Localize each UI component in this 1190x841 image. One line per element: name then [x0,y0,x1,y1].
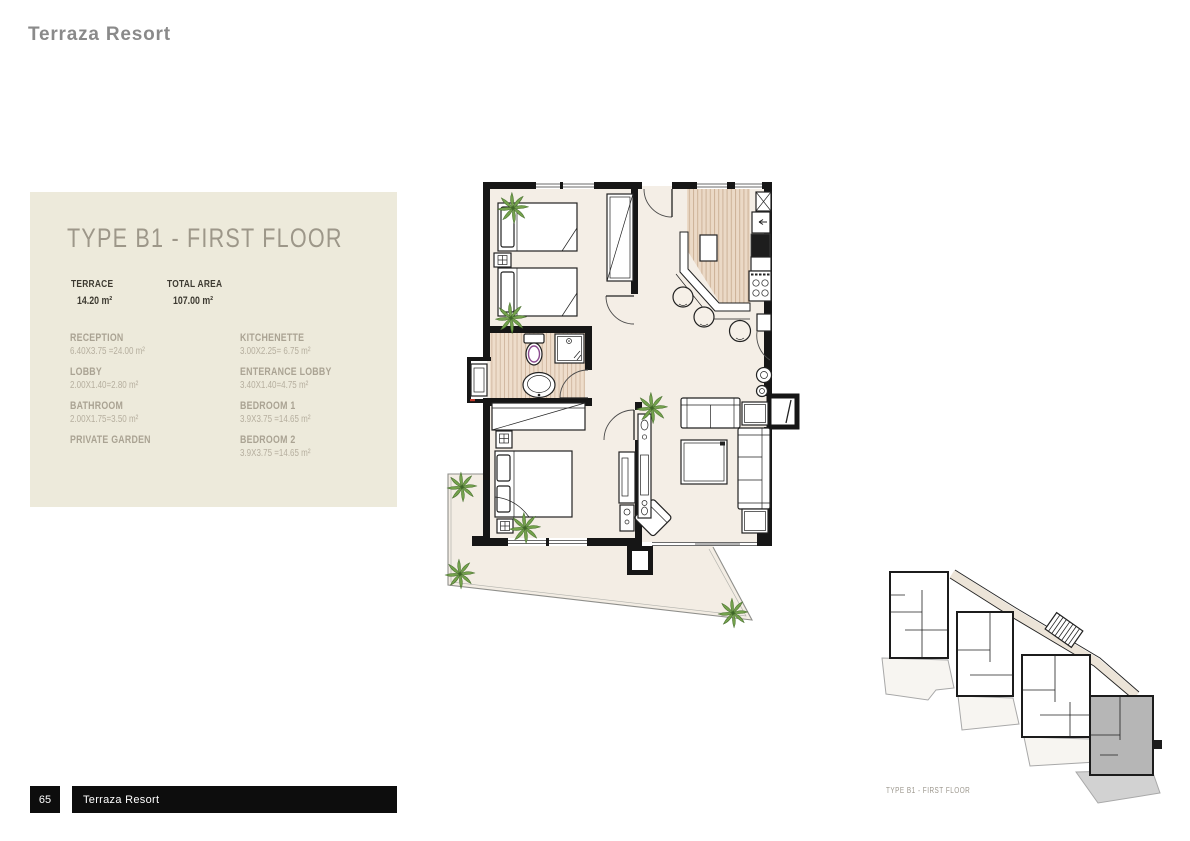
hall-console [638,414,651,518]
room-name: BATHROOM [70,399,123,413]
footer-project-title: Terraza Resort [72,786,397,813]
room-entry: ENTERANCE LOBBY 3.40X1.40=4.75 m² [240,365,397,392]
stat-label: TOTAL AREA [167,278,222,290]
cabinet [757,314,771,331]
window-bedroom2 [508,538,587,546]
washer-niche [467,357,491,403]
room-entry: RECEPTION 6.40X3.75 =24.00 m² [70,331,240,358]
stat-label: TERRACE [71,278,113,290]
small-table [742,509,768,533]
room-entry: PRIVATE GARDEN [70,433,240,447]
info-panel: TYPE B1 - FIRST FLOOR TERRACE 14.20 m² T… [30,192,397,507]
room-dims: 3.00X2.25= 6.75 m² [240,345,311,358]
room-dims: 3.9X3.75 =14.65 m² [240,413,311,426]
room-name: ENTERANCE LOBBY [240,365,332,379]
stair-icon [1045,613,1083,648]
sofa-3seat [738,428,770,509]
room-dims: 3.40X1.40=4.75 m² [240,379,308,392]
sofa-2seat [681,398,740,428]
page-title: Terraza Resort [28,24,171,46]
stat-value: 14.20 m² [77,295,112,307]
room-name: BEDROOM 1 [240,399,295,413]
key-plan [882,570,1162,803]
stat-value: 107.00 m² [173,295,213,307]
highlighted-unit [1090,696,1153,775]
wardrobe [607,194,633,281]
room-dims: 6.40X3.75 =24.00 m² [70,345,145,358]
tv-console [619,452,635,531]
page-number: 65 [30,786,60,813]
window-kitchen-2 [735,182,762,189]
washbasin [523,373,555,398]
page-footer: 65 Terraza Resort [0,786,1190,813]
bed-double [495,451,572,517]
toilet [524,334,544,365]
room-name: RECEPTION [70,331,124,345]
shower [555,334,584,363]
coffee-table [681,440,727,484]
cooktop [749,271,771,301]
room-name: KITCHENETTE [240,331,304,345]
nightstand [497,519,513,533]
room-dims: 3.9X3.75 =14.65 m² [240,447,311,460]
room-dims: 2.00X1.40=2.80 m² [70,379,138,392]
area-stats: TERRACE 14.20 m² TOTAL AREA 107.00 m² [71,278,397,307]
stat-total-area: TOTAL AREA 107.00 m² [167,278,263,307]
nightstand [494,253,511,267]
room-list-right: KITCHENETTE 3.00X2.25= 6.75 m² ENTERANCE… [240,331,397,467]
shaft [756,192,771,211]
entrance-vestibule [769,396,797,427]
room-list-left: RECEPTION 6.40X3.75 =24.00 m² LOBBY 2.00… [70,331,240,467]
stat-terrace: TERRACE 14.20 m² [71,278,167,307]
wardrobe [492,403,585,430]
room-name: PRIVATE GARDEN [70,433,151,447]
room-list: RECEPTION 6.40X3.75 =24.00 m² LOBBY 2.00… [70,331,397,467]
oven [751,234,770,257]
room-name: LOBBY [70,365,102,379]
nightstand [496,431,512,448]
room-dims: 2.00X1.75=3.50 m² [70,413,138,426]
window-kitchen-1 [697,182,727,189]
side-table [742,402,768,425]
window-bedroom1 [536,182,594,189]
room-entry: BEDROOM 2 3.9X3.75 =14.65 m² [240,433,397,460]
room-name: BEDROOM 2 [240,433,295,447]
room-entry: KITCHENETTE 3.00X2.25= 6.75 m² [240,331,397,358]
room-entry: BEDROOM 1 3.9X3.75 =14.65 m² [240,399,397,426]
fridge [752,212,770,233]
room-entry: LOBBY 2.00X1.40=2.80 m² [70,365,240,392]
plan-type-heading: TYPE B1 - FIRST FLOOR [67,224,343,252]
brochure-page: { "page": { "title": "Terraza Resort", "… [0,0,1190,841]
sliding-door-terrace [652,543,757,546]
room-entry: BATHROOM 2.00X1.75=3.50 m² [70,399,240,426]
